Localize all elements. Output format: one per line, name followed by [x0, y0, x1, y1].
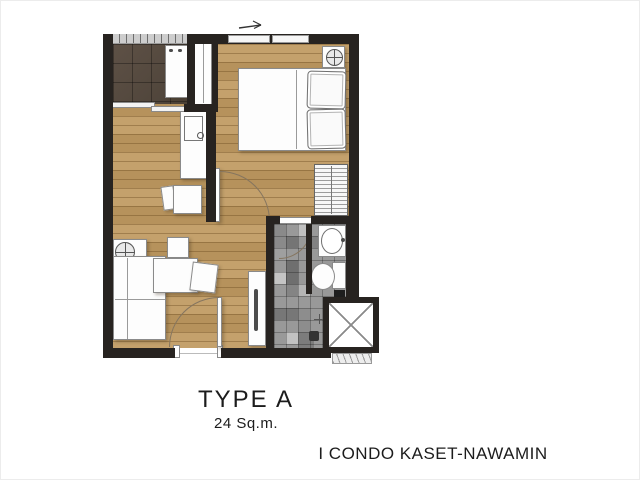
bathroom-wall-top-left — [266, 216, 280, 224]
closet-partition-wall — [212, 34, 218, 110]
unit-area-label: 24 Sq.m. — [156, 415, 336, 432]
bathroom-wall-right — [346, 216, 359, 306]
side-chair — [189, 262, 218, 294]
wardrobe — [314, 164, 348, 216]
balcony-partition-wall — [187, 34, 195, 106]
sofa-cushion-line — [115, 299, 165, 300]
entrance-threshold — [180, 353, 217, 354]
bathroom-wall-top-right — [311, 216, 351, 224]
tall-cabinet — [194, 38, 212, 106]
window — [272, 35, 309, 43]
toilet — [311, 263, 335, 290]
bathroom-wall-left — [266, 216, 274, 348]
cabinet-door-seam — [203, 42, 204, 103]
wall-bottom-right — [221, 348, 331, 358]
dining-table — [173, 185, 202, 214]
faucet-icon — [341, 238, 345, 242]
desk-chair — [167, 237, 189, 258]
project-name-label: I CONDO KASET-NAWAMIN — [311, 444, 555, 464]
plant-icon — [326, 49, 343, 66]
tv-icon — [254, 289, 258, 331]
window — [228, 35, 270, 43]
wall-left — [103, 34, 113, 358]
direction-arrow-icon — [237, 16, 271, 32]
bed-divider-line — [296, 70, 297, 149]
floor-drain — [309, 331, 319, 341]
wardrobe-rail — [331, 166, 332, 214]
balcony-sliding-door-panel — [107, 102, 155, 108]
kitchen-counter — [180, 111, 207, 179]
washer-control-icon — [178, 49, 182, 52]
pillow — [307, 70, 347, 109]
ac-ledge — [323, 297, 379, 353]
pillow — [306, 108, 346, 149]
tv-cabinet — [248, 271, 266, 346]
ac-ledge-louver — [332, 353, 372, 364]
wall-bottom-left — [103, 348, 175, 358]
bathroom-door — [277, 217, 313, 224]
floor-plan-canvas: TYPE A 24 Sq.m. I CONDO KASET-NAWAMIN — [0, 0, 640, 480]
unit-type-label: TYPE A — [156, 386, 336, 414]
washing-machine — [165, 45, 188, 98]
room-divider-wall — [206, 112, 216, 222]
washbasin — [321, 228, 343, 254]
bathroom-partition-wall — [306, 224, 312, 294]
washer-control-icon — [169, 49, 173, 52]
faucet-icon — [197, 132, 204, 139]
kitchen-partition-wall — [184, 104, 218, 112]
balcony-railing — [105, 34, 187, 44]
